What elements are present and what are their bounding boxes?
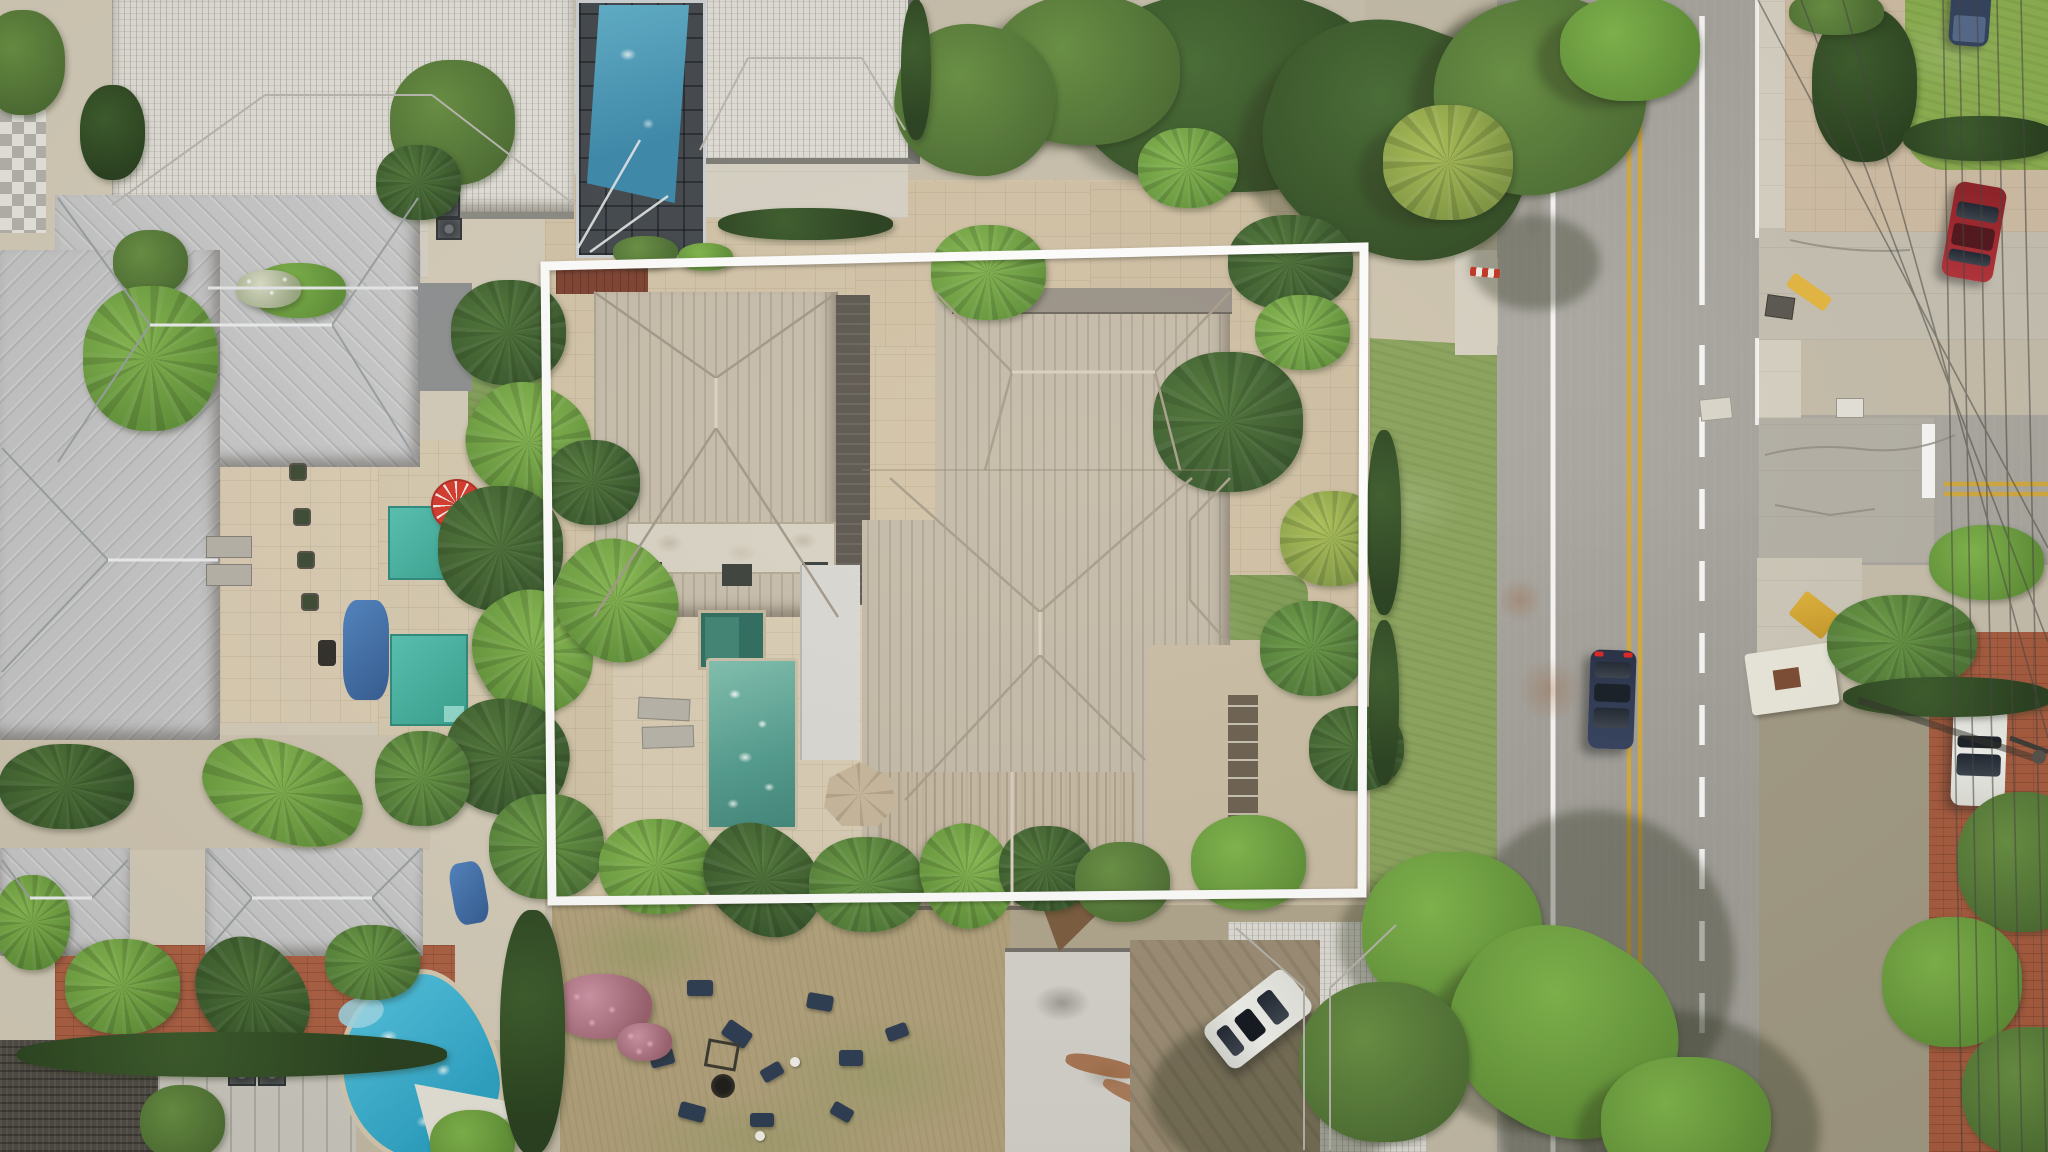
tree-canopy <box>1299 982 1469 1142</box>
tree-canopy <box>1957 792 2048 932</box>
tree-canopy <box>0 10 65 115</box>
palm-tree <box>1827 595 1977 690</box>
tree-canopy <box>613 236 678 268</box>
hedge <box>718 208 893 240</box>
vegetation-layer <box>0 0 2048 1152</box>
palm-tree <box>65 939 180 1034</box>
hedge <box>901 0 931 140</box>
tree-canopy <box>1075 842 1170 922</box>
aerial-photo <box>0 0 2048 1152</box>
hedge <box>17 1032 447 1077</box>
palm-tree <box>599 819 714 914</box>
hedge <box>1903 116 2048 161</box>
tree-canopy <box>1929 525 2044 600</box>
hedge <box>500 910 565 1152</box>
palm-tree <box>1260 601 1365 696</box>
tree-canopy <box>1560 0 1700 101</box>
tree-canopy <box>140 1085 225 1152</box>
palm-tree <box>376 145 461 220</box>
tree-canopy <box>1601 1057 1771 1152</box>
hedge <box>1843 677 2048 717</box>
palm-tree <box>0 875 70 970</box>
palm-tree <box>931 225 1046 320</box>
tree-canopy <box>430 1110 515 1152</box>
palm-tree <box>1138 128 1238 208</box>
hedge <box>80 85 145 180</box>
hedge <box>1369 620 1399 785</box>
palm-tree <box>325 925 420 1000</box>
tree-canopy <box>1191 815 1306 910</box>
palm-tree <box>83 286 218 431</box>
palm-tree <box>1383 105 1513 220</box>
palm-tree <box>1153 352 1303 492</box>
palm-tree <box>375 731 470 826</box>
flower-bush <box>617 1023 672 1061</box>
palm-tree <box>451 280 566 385</box>
hedge <box>1367 430 1401 615</box>
palm-tree <box>809 837 924 932</box>
palm-tree <box>0 744 134 829</box>
tree-canopy <box>1882 917 2022 1047</box>
palm-tree <box>1255 295 1350 370</box>
palm-tree <box>545 440 640 525</box>
tree-canopy <box>678 243 733 271</box>
palm-tree <box>489 794 604 899</box>
palm-tree <box>188 719 376 865</box>
tree-canopy <box>1962 1027 2048 1152</box>
flower-bush <box>236 270 301 308</box>
